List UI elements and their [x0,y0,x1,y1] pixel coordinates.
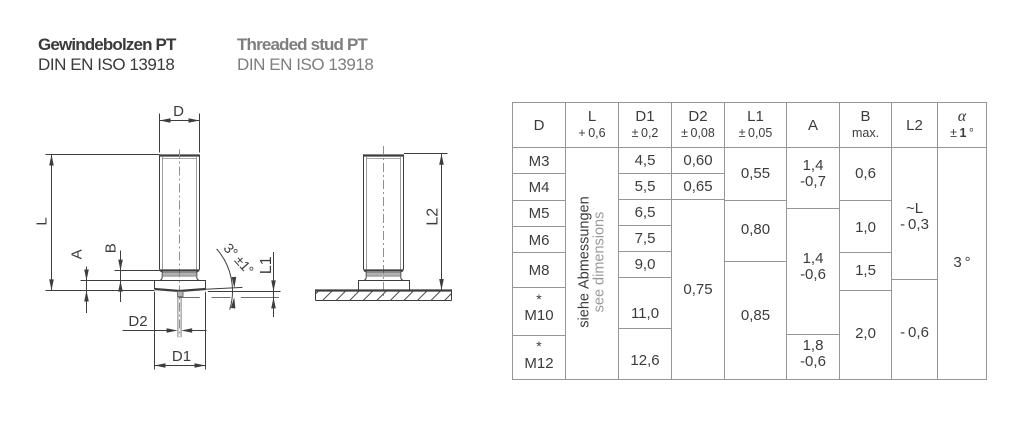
svg-text:L: L [34,217,51,225]
svg-text:D2: D2 [128,313,147,330]
svg-text:B: B [103,243,120,253]
svg-text:D1: D1 [172,348,191,365]
svg-text:L1: L1 [258,256,275,274]
svg-text:A: A [69,249,86,259]
svg-text:3° ±1°: 3° ±1° [221,240,257,278]
svg-text:D: D [173,103,184,120]
svg-text:L2: L2 [424,208,441,226]
